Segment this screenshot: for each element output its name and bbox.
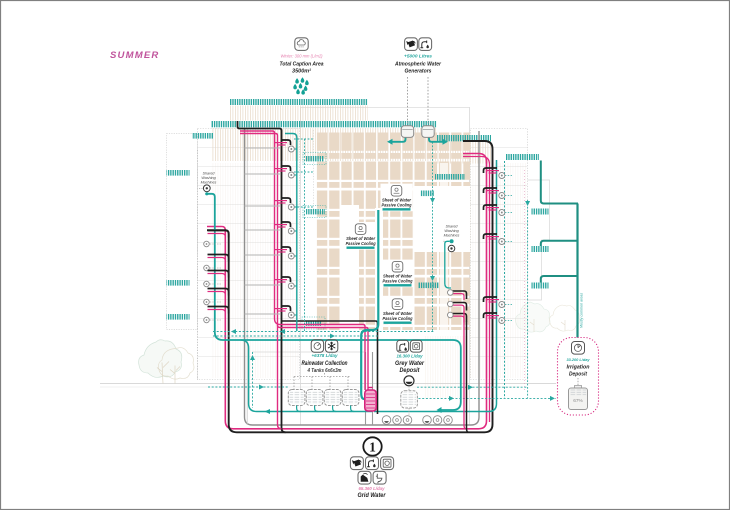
svg-text:Total Caption Area: Total Caption Area [280, 61, 325, 67]
svg-text:Irrigation: Irrigation [567, 365, 591, 371]
svg-text:Grid Water: Grid Water [358, 493, 387, 499]
svg-text:33.200 L/day: 33.200 L/day [567, 357, 591, 362]
svg-text:Winter: 300 mm (L/m2): Winter: 300 mm (L/m2) [281, 54, 324, 59]
svg-text:Passive Cooling: Passive Cooling [383, 278, 413, 283]
svg-text:Washing: Washing [201, 176, 216, 180]
svg-text:Generators: Generators [405, 69, 433, 75]
svg-text:Machines: Machines [444, 234, 460, 238]
svg-text:+6378 L/day: +6378 L/day [312, 353, 339, 358]
svg-text:Deposit: Deposit [400, 368, 421, 374]
svg-text:Atmospheric Water: Atmospheric Water [394, 61, 441, 67]
svg-text:Rainwater Collection: Rainwater Collection [302, 361, 348, 367]
svg-text:+5000 Litres: +5000 Litres [404, 54, 433, 59]
svg-text:Mostly common areas: Mostly common areas [580, 293, 584, 328]
svg-text:Grey Water: Grey Water [395, 361, 425, 367]
svg-text:Passive Cooling: Passive Cooling [346, 241, 376, 246]
svg-text:16.300 L/day: 16.300 L/day [397, 354, 424, 359]
svg-text:Machines: Machines [201, 181, 217, 185]
svg-text:SUMMER: SUMMER [110, 50, 159, 61]
svg-text:67%: 67% [573, 398, 583, 404]
svg-text:65.360 L/day: 65.360 L/day [359, 486, 386, 491]
svg-text:Passive Cooling: Passive Cooling [383, 316, 413, 321]
svg-text:Shared: Shared [203, 172, 216, 176]
svg-text:Shared: Shared [446, 225, 459, 229]
svg-text:Passive Cooling: Passive Cooling [382, 202, 412, 207]
svg-text:Deposit: Deposit [569, 372, 588, 378]
svg-text:4 Tanks 6x6x3m: 4 Tanks 6x6x3m [307, 368, 342, 374]
svg-text:1: 1 [369, 440, 376, 455]
svg-text:3500m²: 3500m² [292, 68, 312, 75]
svg-text:Washing: Washing [444, 229, 459, 233]
